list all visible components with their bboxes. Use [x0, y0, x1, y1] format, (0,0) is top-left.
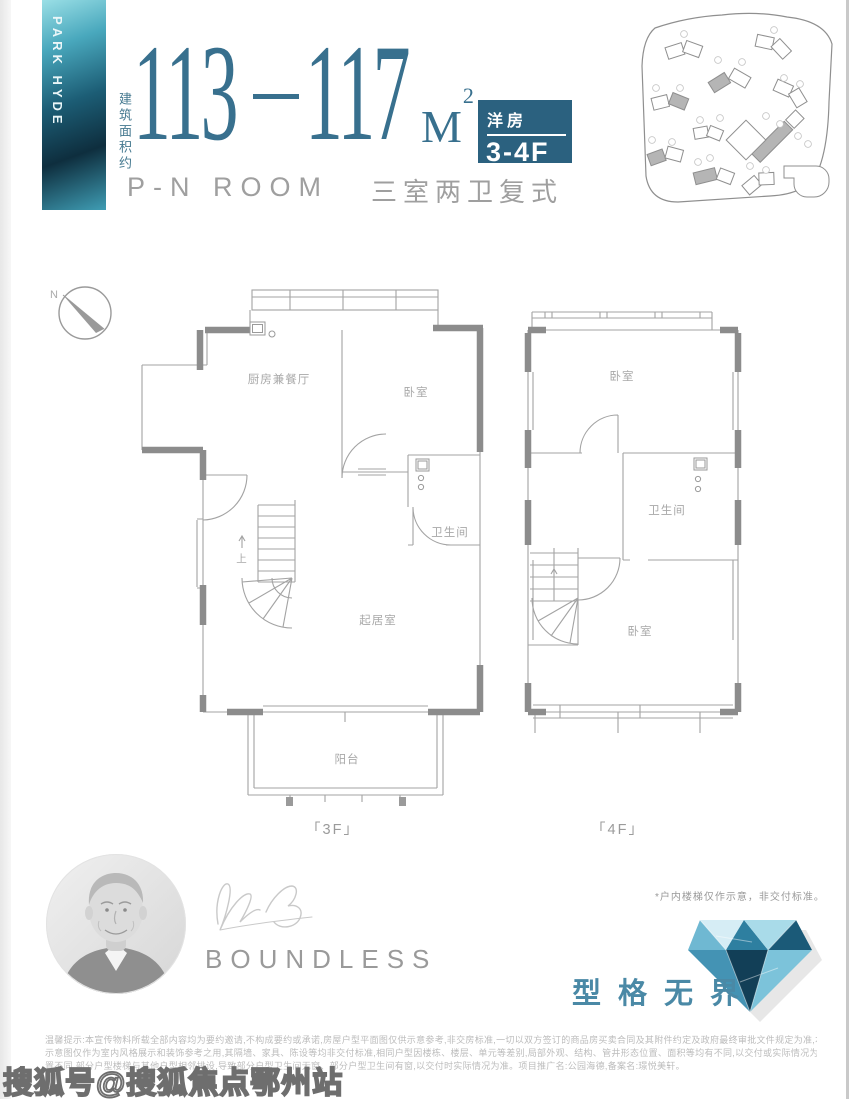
room-label-bathroom-4f: 卫生间: [648, 503, 686, 517]
room-label-bathroom-3f: 卫生间: [431, 525, 469, 539]
floorplan-3f: 厨房兼餐厅 卧室 卫生间 起居室 阳台 上 「3F」: [142, 290, 483, 838]
floorplan-4f: 卧室 卫生间 卧室 「4F」: [528, 312, 738, 838]
room-label-bedroom-4f-top: 卧室: [610, 369, 635, 383]
floor-label-3f: 「3F」: [306, 821, 360, 838]
compass-north-label: N: [50, 289, 58, 301]
poster-page: PARK HYDE 建筑面积约 113 117 M 2 洋房 3-4F P-N …: [0, 0, 859, 1099]
signature: [200, 872, 350, 944]
floor-label-4f: 「4F」: [591, 821, 645, 838]
room-label-bedroom-3f: 卧室: [404, 385, 429, 399]
room-label-bedroom-4f-bottom: 卧室: [628, 624, 653, 638]
room-label-living: 起居室: [359, 613, 397, 627]
room-label-kitchen-dining: 厨房兼餐厅: [248, 372, 311, 386]
compass: N: [50, 287, 111, 339]
balcony-post: [399, 797, 406, 806]
stair-up-label: 上: [236, 553, 248, 565]
portrait-photo: [45, 853, 187, 995]
slogan: 型格无界: [572, 970, 756, 1012]
balcony-post: [286, 797, 293, 806]
boundless-label: BOUNDLESS: [205, 944, 437, 975]
stair-note: *户内楼梯仅作示意，非交付标准。: [655, 888, 825, 903]
watermark: 搜狐号@搜狐焦点鄂州站: [3, 1058, 343, 1099]
room-label-balcony: 阳台: [335, 752, 360, 766]
disclaimer-line-1: 温馨提示:本宣传物料所载全部内容均为要约邀请,不构成要约或承诺,房屋户型平面图仅…: [45, 1034, 817, 1046]
